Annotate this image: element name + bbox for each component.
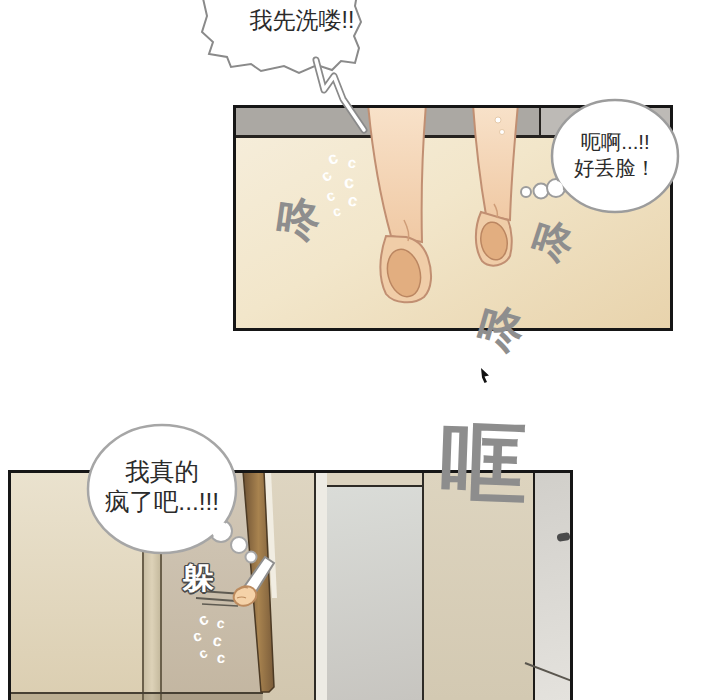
thought-bubble-top-text: 呃啊...!! 好丢脸！ xyxy=(537,129,693,181)
sfx-kuang: 哐 xyxy=(439,418,529,508)
right-leg xyxy=(473,108,518,266)
sfx-dong-1: 咚 xyxy=(273,193,324,244)
speech-bubble-text: 我先洗喽!! xyxy=(224,6,380,35)
sfx-duo: 躲 xyxy=(183,557,214,599)
motion-mark: c xyxy=(216,650,226,666)
comic-page: c c c c c c c 咚 咚 xyxy=(0,0,720,700)
left-leg xyxy=(368,108,431,302)
thought-bubble-bottom-text: 我真的 疯了吧...!!! xyxy=(86,457,238,517)
cursor-icon xyxy=(481,368,489,383)
motion-mark: c xyxy=(343,173,355,192)
motion-mark: c xyxy=(216,616,226,631)
